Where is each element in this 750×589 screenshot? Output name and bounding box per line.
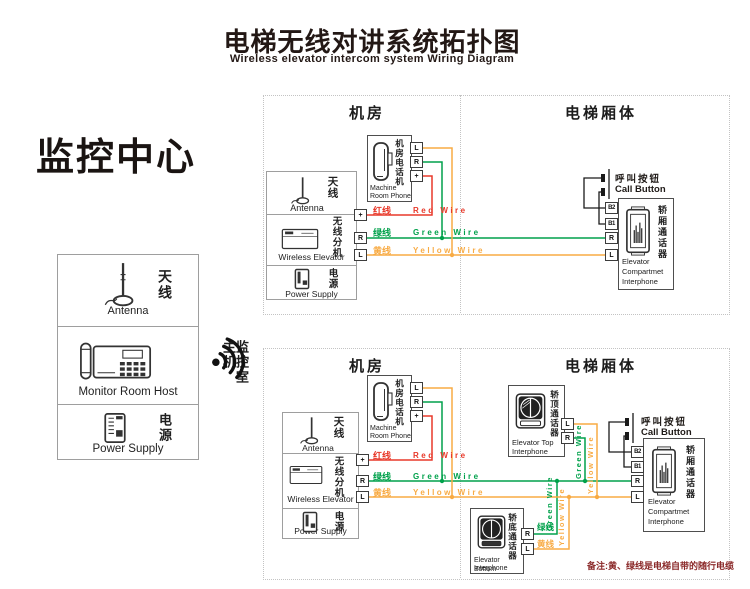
desk-phone-icon xyxy=(78,339,156,385)
d1-red-wire-label-cn: 红线 xyxy=(373,207,391,216)
d2-yellow-wire-vertical-label-2: Yellow Wire xyxy=(558,488,566,546)
d1-compartment-interphone-box: 轿厢通话器 Elevator Compartmet Interphone xyxy=(618,198,674,290)
d1-wireless-label-en: Wireless Elevator xyxy=(267,252,356,263)
machine-phone-icon xyxy=(372,381,394,423)
d2-green-wire-vertical-label-1: Green Wire xyxy=(575,424,583,479)
wireless-extension-icon xyxy=(281,226,319,252)
d2-bottom-interphone-box: 轿底通话器 Elevator Bottom Interphone xyxy=(470,508,524,574)
d1-machine-room-phone-box: 机房电话机 Machine Room Phone xyxy=(367,135,412,202)
footnote: 备注:黄、绿线是电梯自带的随行电缆 xyxy=(587,559,734,572)
antenna-icon xyxy=(298,416,324,446)
compartment-interphone-icon xyxy=(651,446,677,496)
d2-bottom-interphone-terminal-r: R xyxy=(521,528,534,540)
d1-power-label-en: Power Supply xyxy=(267,289,356,300)
d2-wireless-label-en: Wireless Elevator xyxy=(283,494,358,505)
d2-compartment-terminal-b2: B2 xyxy=(631,446,644,458)
d1-station-terminal-l: L xyxy=(354,249,367,261)
d2-compartment-label-en2: Compartmet xyxy=(648,507,689,517)
d2-power-label-en: Power Supply xyxy=(283,526,358,537)
d2-station-terminal-r: R xyxy=(356,475,369,487)
d2-station-terminal-plus: + xyxy=(356,454,369,466)
wiring-diagram-canvas: 电梯无线对讲系统拓扑图 Wireless elevator intercom s… xyxy=(0,0,750,589)
d2-compartment-label-cn: 轿厢通话器 xyxy=(685,445,694,511)
d1-station-box: 天线 Antenna 无线分机 Wireless Elevator 电源 Pow… xyxy=(266,171,357,300)
d1-phone-terminal-l: L xyxy=(410,142,423,154)
d1-yellow-wire-label-en: Yellow Wire xyxy=(413,247,485,255)
d2-bottom-yellow-label-cn: 黄线 xyxy=(537,540,554,549)
d1-station-terminal-plus: + xyxy=(354,209,367,221)
d2-phone-terminal-plus: + xyxy=(410,410,423,422)
d2-compartment-interphone-box: 轿厢通话器 Elevator Compartmet Interphone xyxy=(643,438,705,532)
d2-top-interphone-box: 轿顶通话器 Elevator Top Interphone xyxy=(508,385,565,457)
d1-compartment-label-cn: 轿厢通话器 xyxy=(657,205,666,271)
d2-red-wire-label-en: Red Wire xyxy=(413,452,468,460)
speaker-interphone-icon xyxy=(515,392,546,430)
d2-phone-label-en2: Room Phone xyxy=(370,432,411,441)
d2-station-terminal-l: L xyxy=(356,491,369,503)
d2-top-interphone-terminal-r: R xyxy=(561,432,574,444)
power-supply-icon xyxy=(102,411,128,445)
d1-compartment-terminal-b2: B2 xyxy=(605,202,618,214)
d1-compartment-label-en1: Elevator xyxy=(622,257,650,267)
power-supply-icon xyxy=(301,511,319,533)
d1-machine-room-title: 机房 xyxy=(327,102,407,123)
monitor-power-label-cn: 电源 xyxy=(158,413,171,447)
d2-phone-label-cn: 机房电话机 xyxy=(395,379,404,427)
d1-compartment-terminal-l: L xyxy=(605,249,618,261)
d1-call-button-label-en: Call Button xyxy=(615,184,666,195)
d1-phone-label-cn: 机房电话机 xyxy=(395,139,404,187)
d1-phone-terminal-r: R xyxy=(410,156,423,168)
d2-elevator-car-title: 电梯厢体 xyxy=(536,355,666,376)
d2-call-button-label-cn: 呼叫按钮 xyxy=(641,414,687,428)
d1-phone-terminal-plus: + xyxy=(410,170,423,182)
d1-compartment-label-en2: Compartmet xyxy=(622,267,663,277)
d1-red-wire-label-en: Red Wire xyxy=(413,207,468,215)
d1-compartment-terminal-r: R xyxy=(605,232,618,244)
d2-machine-room-phone-box: 机房电话机 Machine Room Phone xyxy=(367,375,412,442)
d2-phone-terminal-l: L xyxy=(410,382,423,394)
d2-yellow-wire-label-cn: 黄线 xyxy=(373,489,391,498)
d1-compartment-label-en3: Interphone xyxy=(622,277,658,287)
call-button-symbol xyxy=(584,169,609,224)
d2-phone-terminal-r: R xyxy=(410,396,423,408)
d2-bottom-interphone-terminal-l: L xyxy=(521,543,534,555)
d2-bottom-green-label-cn: 绿线 xyxy=(537,523,554,532)
d2-antenna-label-cn: 天线 xyxy=(333,416,344,446)
antenna-icon xyxy=(100,261,144,309)
monitor-power-label-en: Power Supply xyxy=(58,443,198,455)
d1-yellow-wire-label-cn: 黄线 xyxy=(373,247,391,256)
d2-top-interphone-terminal-l: L xyxy=(561,418,574,430)
d2-station-box: 天线 Antenna 无线分机 Wireless Elevator 电源 Pow… xyxy=(282,412,359,539)
d1-elevator-car-title: 电梯厢体 xyxy=(536,102,666,123)
d2-compartment-terminal-l: L xyxy=(631,491,644,503)
d1-compartment-terminal-b1: B1 xyxy=(605,218,618,230)
d2-yellow-wire-label-en: Yellow Wire xyxy=(413,489,485,497)
d2-top-interphone-label-en2: Interphone xyxy=(512,447,548,457)
d2-compartment-terminal-r: R xyxy=(631,475,644,487)
d1-antenna-label-cn: 天线 xyxy=(327,176,338,206)
d2-compartment-label-en1: Elevator xyxy=(648,497,676,507)
monitor-host-label-en: Monitor Room Host xyxy=(58,386,198,398)
wireless-extension-icon xyxy=(289,463,323,487)
d2-yellow-wire-vertical-label-1: Yellow Wire xyxy=(587,436,595,494)
d1-green-wire-label-cn: 绿线 xyxy=(373,229,391,238)
d2-machine-room-title: 机房 xyxy=(327,355,407,376)
d1-station-terminal-r: R xyxy=(354,232,367,244)
d1-call-button-label-cn: 呼叫按钮 xyxy=(615,171,661,185)
monitor-center-box: 天线 Antenna 监控室主机 Monitor Room Host 电源 Po… xyxy=(57,254,199,460)
machine-phone-icon xyxy=(372,141,394,183)
d2-green-wire-label-en: Green Wire xyxy=(413,473,481,481)
d2-bottom-interphone-label-en2: Interphone xyxy=(474,564,507,573)
d2-red-wire-label-cn: 红线 xyxy=(373,452,391,461)
call-button-symbol xyxy=(609,413,633,467)
d2-green-wire-label-cn: 绿线 xyxy=(373,473,391,482)
antenna-icon xyxy=(289,176,315,206)
d2-call-button-label-en: Call Button xyxy=(641,427,692,438)
compartment-interphone-icon xyxy=(625,206,651,256)
d2-compartment-terminal-b1: B1 xyxy=(631,461,644,473)
d2-compartment-label-en3: Interphone xyxy=(648,517,684,527)
d1-green-wire-label-en: Green Wire xyxy=(413,229,481,237)
d1-phone-label-en2: Room Phone xyxy=(370,192,411,201)
power-supply-icon xyxy=(293,268,311,290)
d2-top-interphone-label-cn: 轿顶通话器 xyxy=(550,390,559,444)
speaker-interphone-icon xyxy=(477,514,506,550)
